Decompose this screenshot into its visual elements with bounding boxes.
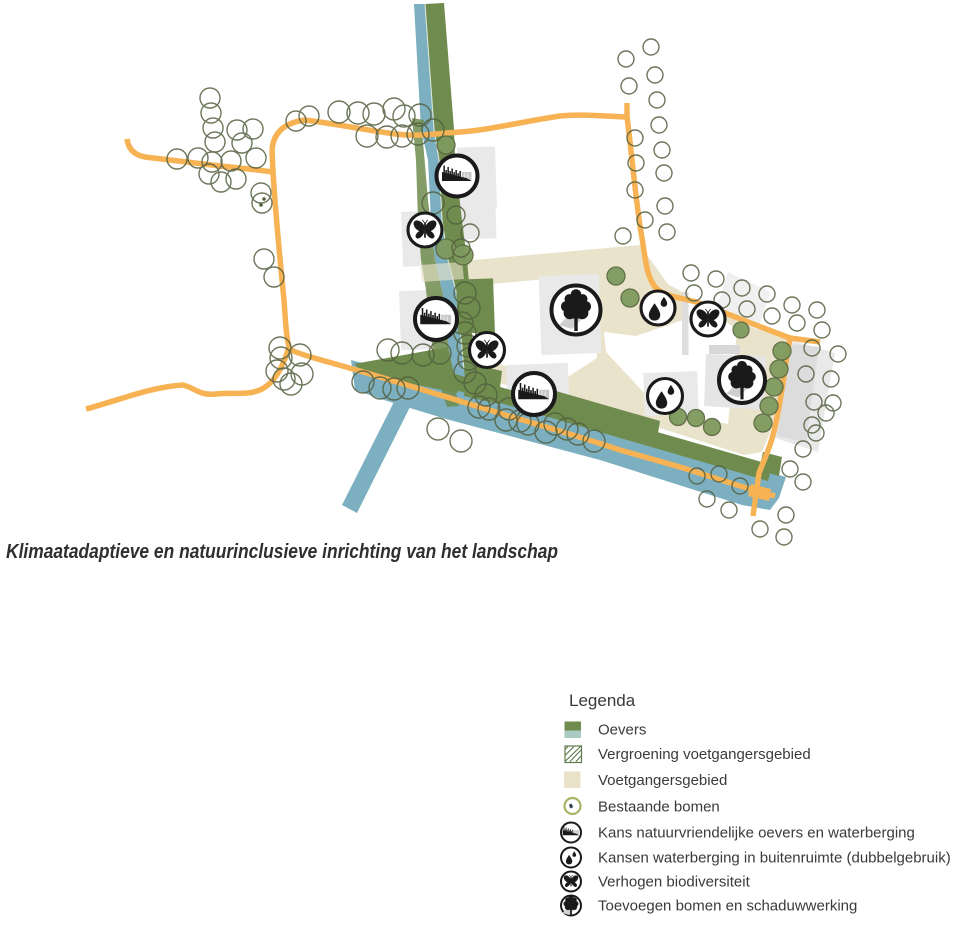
svg-text:Verhogen biodiversiteit: Verhogen biodiversiteit <box>598 874 751 891</box>
svg-text:Vergroening voetgangersgebied: Vergroening voetgangersgebied <box>598 746 811 763</box>
svg-text:Kansen waterberging in buitenr: Kansen waterberging in buitenruimte (dub… <box>598 850 951 867</box>
svg-text:Legenda: Legenda <box>569 691 636 710</box>
svg-text:Toevoegen bomen en schaduwwerk: Toevoegen bomen en schaduwwerking <box>598 898 857 915</box>
svg-text:Bestaande bomen: Bestaande bomen <box>598 799 720 816</box>
svg-text:Klimaatadaptieve en natuurincl: Klimaatadaptieve en natuurinclusieve inr… <box>6 541 558 563</box>
svg-text:Oevers: Oevers <box>598 722 646 739</box>
svg-text:Voetgangersgebied: Voetgangersgebied <box>598 772 727 789</box>
svg-text:Kans natuurvriendelijke oevers: Kans natuurvriendelijke oevers en waterb… <box>598 825 915 842</box>
